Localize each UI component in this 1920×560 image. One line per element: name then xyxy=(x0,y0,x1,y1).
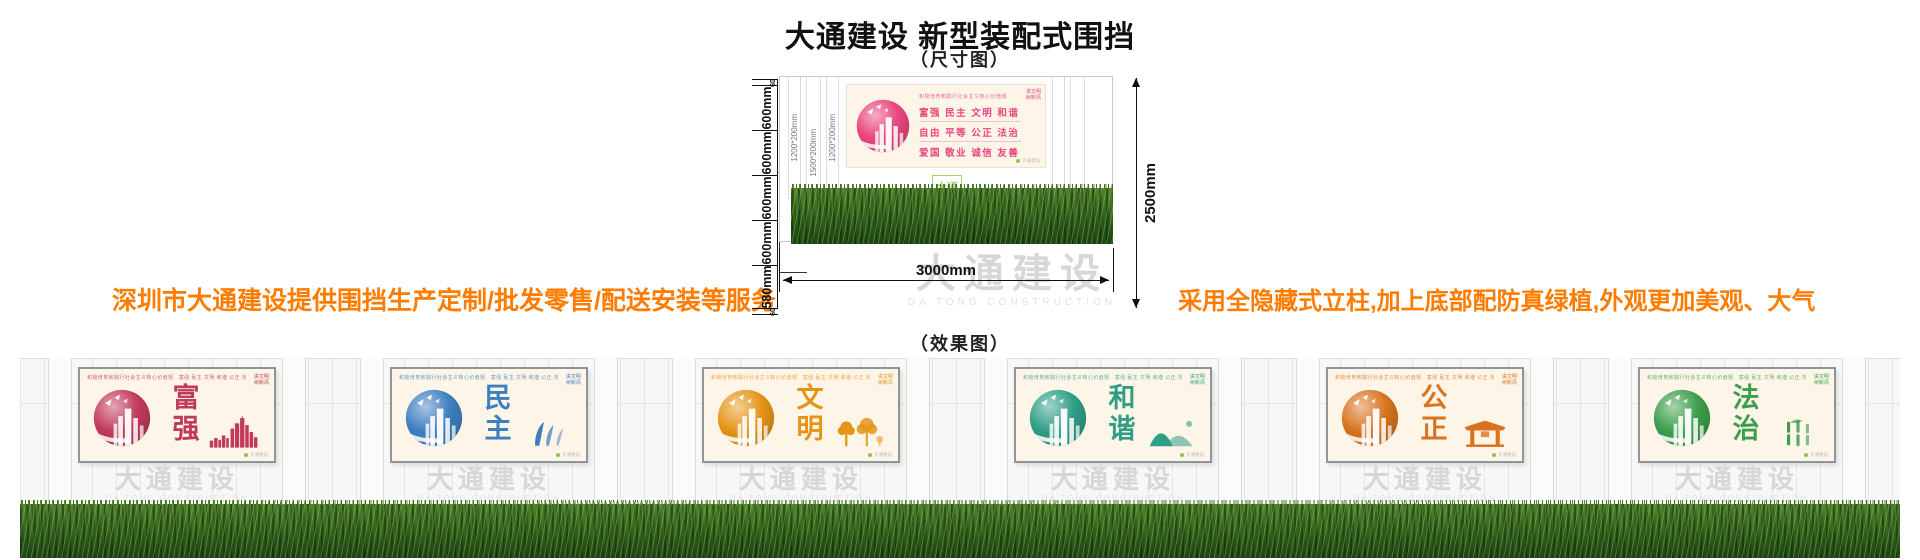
effect-panel: 积极培育和践行社会主义核心价值观 富强 民主 文明 和谐 公正 法治 爱国 敬业… xyxy=(1638,367,1836,463)
values-slogan: 积极培育和践行社会主义核心价值观 xyxy=(919,93,1021,100)
diagram-grass-hedge xyxy=(791,188,1113,244)
corner-slogan-line: 树新风 xyxy=(1502,380,1517,386)
height-dimension-line xyxy=(1136,78,1137,308)
effect-panel: 积极培育和践行社会主义核心价值观 富强 民主 文明 和谐 公正 法治 爱国 敬业… xyxy=(1326,367,1524,463)
panel-footer: 大通建设 xyxy=(556,452,580,458)
panel-word-char: 强 xyxy=(168,414,204,445)
panel-word: 富强 xyxy=(168,383,204,445)
brand-watermark: 大通建设DA TONG CONSTRUCTION xyxy=(1617,466,1857,503)
fence-column xyxy=(1052,77,1065,199)
dimension-label: 600mm xyxy=(761,131,774,174)
brand-watermark: 大通建设DA TONG CONSTRUCTION xyxy=(993,466,1233,503)
corner-slogan: 讲文明 树新风 xyxy=(1026,89,1041,101)
height-dimension-chain: 60600mm600mm600mm600mm580mm60 xyxy=(752,79,778,308)
effect-grass-hedge xyxy=(20,504,1900,558)
brand-watermark-cn: 大通建设 xyxy=(369,466,609,492)
brand-watermark-cn: 大通建设 xyxy=(1305,466,1545,492)
papercut-circle-graphic xyxy=(1028,388,1088,448)
footer-brand: 大通建设 xyxy=(1498,452,1516,458)
panel-footer: 大通建设 xyxy=(244,452,268,458)
footer-brand: 大通建设 xyxy=(1022,158,1040,164)
corner-slogan-line: 树新风 xyxy=(1190,380,1205,386)
height-dimension-label: 2500mm xyxy=(1142,163,1159,223)
logo-dot-icon xyxy=(1492,453,1496,457)
core-values-row: 自由 平等 公正 法治 xyxy=(919,122,1021,142)
brand-watermark: 大通建设DA TONG CONSTRUCTION xyxy=(1305,466,1545,503)
dimension-segment: 580mm xyxy=(752,265,778,308)
corner-slogan-line: 树新风 xyxy=(1026,95,1041,101)
panel-word-char: 主 xyxy=(480,414,516,445)
panel-slogan: 积极培育和践行社会主义核心价值观 富强 民主 文明 和谐 公正 法治 爱国 敬业… xyxy=(1335,374,1494,381)
brand-watermark: 大通建设DA TONG CONSTRUCTION xyxy=(369,466,609,503)
corner-slogan: 讲文明树新风 xyxy=(254,374,269,386)
panel-slogan: 积极培育和践行社会主义核心价值观 富强 民主 文明 和谐 公正 法治 爱国 敬业… xyxy=(1647,374,1806,381)
panel-word-char: 正 xyxy=(1416,414,1452,445)
panel-word: 民主 xyxy=(480,383,516,445)
panel-footer: 大通建设 xyxy=(1492,452,1516,458)
panel-word-char: 公 xyxy=(1416,383,1452,414)
corner-slogan-line: 树新风 xyxy=(878,380,893,386)
papercut-circle-graphic xyxy=(716,388,776,448)
figures-icon xyxy=(532,418,572,448)
dimension-label: 600mm xyxy=(761,176,774,219)
dimension-segment: 600mm xyxy=(752,175,778,220)
brand-watermark-cn: 大通建设 xyxy=(993,466,1233,492)
corner-slogan-line: 树新风 xyxy=(566,380,581,386)
mountain-icon xyxy=(1148,417,1196,448)
effect-panel: 积极培育和践行社会主义核心价值观 富强 民主 文明 和谐 公正 法治 爱国 敬业… xyxy=(390,367,588,463)
papercut-circle-graphic xyxy=(92,388,152,448)
footer-brand: 大通建设 xyxy=(874,452,892,458)
effect-panel: 积极培育和践行社会主义核心价值观 富强 民主 文明 和谐 公正 法治 爱国 敬业… xyxy=(702,367,900,463)
panel-footer: 大通建设 xyxy=(868,452,892,458)
panel-word-char: 治 xyxy=(1728,414,1764,445)
logo-dot-icon xyxy=(556,453,560,457)
corner-slogan: 讲文明树新风 xyxy=(1190,374,1205,386)
logo-dot-icon xyxy=(244,453,248,457)
width-dimension-label: 3000mm xyxy=(779,262,1113,279)
panel-word-char: 富 xyxy=(168,383,204,414)
papercut-circle-graphic xyxy=(404,388,464,448)
dimension-segment: 600mm xyxy=(752,130,778,175)
effect-panel: 积极培育和践行社会主义核心价值观 富强 民主 文明 和谐 公正 法治 爱国 敬业… xyxy=(1014,367,1212,463)
core-values-row: 爱国 敬业 诚信 友善 xyxy=(919,142,1021,161)
trees-icon xyxy=(836,417,884,448)
dimension-label: 600mm xyxy=(761,221,774,264)
logo-dot-icon xyxy=(1804,453,1808,457)
footer-brand: 大通建设 xyxy=(562,452,580,458)
dimension-segment: 60 xyxy=(752,308,778,315)
panel-word: 公正 xyxy=(1416,383,1452,445)
column-size-label: 1200*200mm xyxy=(828,114,837,162)
values-panel: 积极培育和践行社会主义核心价值观 富强 民主 文明 和谐 自由 平等 公正 法治… xyxy=(846,84,1046,168)
corner-slogan-line: 树新风 xyxy=(254,380,269,386)
values-panel-body: 积极培育和践行社会主义核心价值观 富强 民主 文明 和谐 自由 平等 公正 法治… xyxy=(919,93,1021,161)
effect-panel: 积极培育和践行社会主义核心价值观 富强 民主 文明 和谐 公正 法治 爱国 敬业… xyxy=(78,367,276,463)
panel-word: 和谐 xyxy=(1104,383,1140,445)
skyline-icon xyxy=(208,416,260,448)
dimension-segment: 600mm xyxy=(752,85,778,130)
panel-word-char: 法 xyxy=(1728,383,1764,414)
panel-word-char: 明 xyxy=(792,414,828,445)
poster-canvas: 大通建设 新型装配式围挡 （尺寸图） 深圳市大通建设提供围挡生产定制/批发零售/… xyxy=(0,0,1920,560)
width-dimension-line xyxy=(783,280,1109,281)
brand-watermark-cn: 大通建设 xyxy=(681,466,921,492)
panel-word: 文明 xyxy=(792,383,828,445)
corner-slogan: 讲文明树新风 xyxy=(1502,374,1517,386)
fence-column: 1200*200mm xyxy=(788,77,801,199)
footer-brand: 大通建设 xyxy=(250,452,268,458)
panel-footer: 大通建设 xyxy=(1180,452,1204,458)
panel-footer: 大通建设 xyxy=(1804,452,1828,458)
panel-slogan: 积极培育和践行社会主义核心价值观 富强 民主 文明 和谐 公正 法治 爱国 敬业… xyxy=(1023,374,1182,381)
corner-slogan-line: 树新风 xyxy=(1814,380,1829,386)
panel-word: 法治 xyxy=(1728,383,1764,445)
panel-word-char: 和 xyxy=(1104,383,1140,414)
panel-slogan: 积极培育和践行社会主义核心价值观 富强 民主 文明 和谐 公正 法治 爱国 敬业… xyxy=(399,374,558,381)
brand-watermark: 大通建设DA TONG CONSTRUCTION xyxy=(681,466,921,503)
dimension-label: 600mm xyxy=(761,86,774,129)
column-size-label: 1500*200mm xyxy=(809,129,818,177)
papercut-circle-graphic xyxy=(855,98,911,154)
panel-footer: 大通建设 xyxy=(1016,158,1040,164)
papercut-circle-graphic xyxy=(1652,388,1712,448)
panel-word-char: 谐 xyxy=(1104,414,1140,445)
footer-brand: 大通建设 xyxy=(1810,452,1828,458)
logo-dot-icon xyxy=(868,453,872,457)
brand-watermark: 大通建设DA TONG CONSTRUCTION xyxy=(57,466,297,503)
core-values-row: 富强 民主 文明 和谐 xyxy=(919,102,1021,122)
brand-watermark-cn: 大通建设 xyxy=(57,466,297,492)
panel-word-char: 文 xyxy=(792,383,828,414)
dimension-segment: 600mm xyxy=(752,220,778,265)
extension-line xyxy=(1113,248,1114,292)
gate-icon xyxy=(1462,418,1508,448)
corner-slogan: 讲文明树新风 xyxy=(566,374,581,386)
logo-dot-icon xyxy=(1016,159,1020,163)
fence-column: 1200*200mm xyxy=(826,77,839,199)
panel-slogan: 积极培育和践行社会主义核心价值观 富强 民主 文明 和谐 公正 法治 爱国 敬业… xyxy=(87,374,246,381)
corner-slogan: 讲文明树新风 xyxy=(1814,374,1829,386)
column-size-label: 1200*200mm xyxy=(790,114,799,162)
papercut-circle-graphic xyxy=(1340,388,1400,448)
dimension-label: 60 xyxy=(770,308,777,316)
panel-word-char: 民 xyxy=(480,383,516,414)
brand-watermark-cn: 大通建设 xyxy=(1617,466,1857,492)
dimension-label: 580mm xyxy=(761,265,774,308)
corner-slogan: 讲文明树新风 xyxy=(878,374,893,386)
logo-dot-icon xyxy=(1180,453,1184,457)
footer-brand: 大通建设 xyxy=(1186,452,1204,458)
panel-slogan: 积极培育和践行社会主义核心价值观 富强 民主 文明 和谐 公正 法治 爱国 敬业… xyxy=(711,374,870,381)
bamboo-icon xyxy=(1776,419,1820,448)
